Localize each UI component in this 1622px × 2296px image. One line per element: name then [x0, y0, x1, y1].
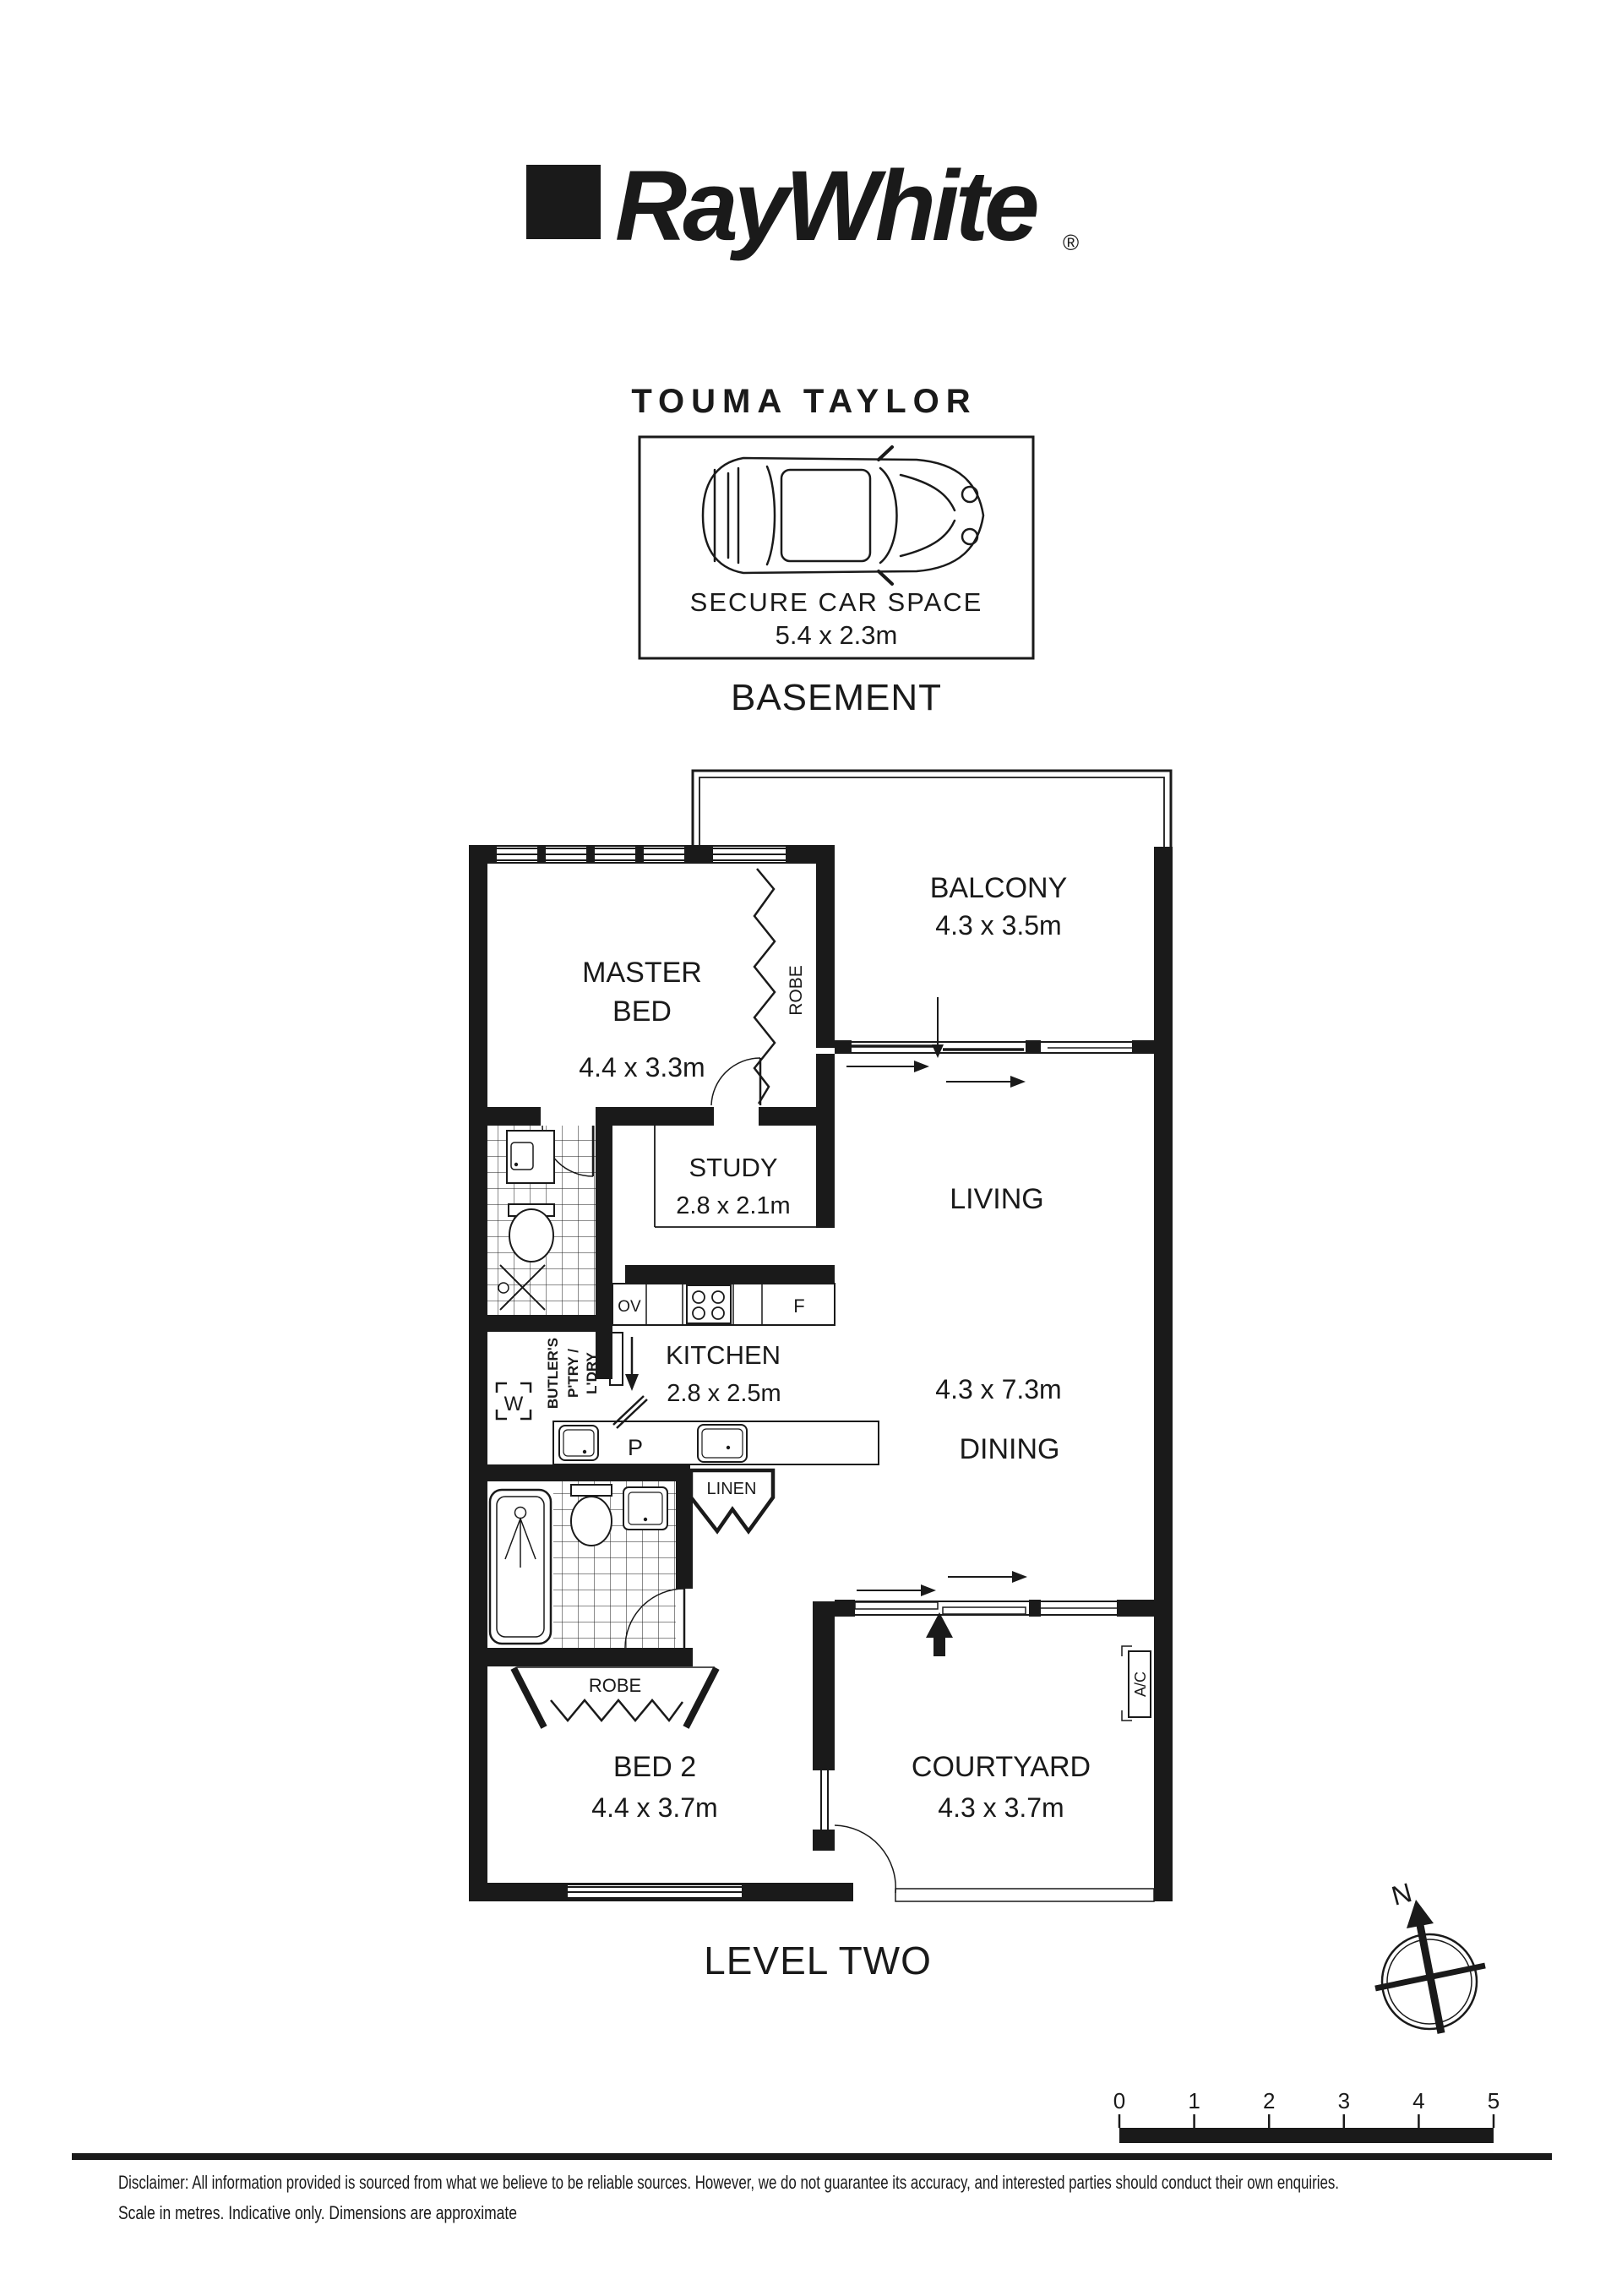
dining-label: DINING	[960, 1433, 1060, 1465]
master-robe	[754, 869, 775, 1104]
butlers-label-2: P'TRY /	[565, 1349, 581, 1398]
butlers-label-3: L'DRY	[584, 1352, 600, 1394]
master-bed-label-2: BED	[612, 995, 672, 1028]
scale-bar: 0 1 2 3 4 5	[1113, 2088, 1500, 2143]
fridge-label: F	[793, 1295, 804, 1317]
balcony-sliding-door	[835, 997, 1154, 1088]
kitchen-dims: 2.8 x 2.5m	[667, 1380, 781, 1407]
car-space-dims: 5.4 x 2.3m	[776, 620, 898, 650]
level-two-title: LEVEL TWO	[704, 1939, 932, 1982]
living-dims: 4.3 x 7.3m	[935, 1374, 1061, 1404]
scale-tick-0: 0	[1113, 2088, 1125, 2113]
north-label: N	[1388, 1877, 1415, 1912]
master-bed-dims: 4.4 x 3.3m	[579, 1052, 705, 1083]
linen-label: LINEN	[707, 1480, 757, 1498]
entry-arrow	[926, 1612, 953, 1656]
ensuite-vanity	[507, 1131, 554, 1183]
balcony-dims: 4.3 x 3.5m	[935, 910, 1061, 941]
courtyard-dims: 4.3 x 3.7m	[938, 1792, 1064, 1823]
footer-divider	[72, 2153, 1552, 2160]
courtyard-label: COURTYARD	[912, 1751, 1091, 1783]
bed2-label: BED 2	[613, 1751, 696, 1783]
washer-label: W	[504, 1393, 524, 1415]
kitchen-entry	[610, 1333, 639, 1391]
robe-master-label: ROBE	[787, 965, 806, 1016]
ac-unit: A/C	[1122, 1646, 1151, 1721]
robe-bed2-label: ROBE	[589, 1675, 641, 1696]
master-door	[711, 1058, 760, 1105]
disclaimer-line2: Scale in metres. Indicative only. Dimens…	[118, 2202, 517, 2223]
study-label: STUDY	[689, 1153, 777, 1182]
pantry-label: P	[628, 1435, 643, 1460]
study-dims: 2.8 x 2.1m	[676, 1192, 790, 1219]
butlers-pantry: W BUTLER'S P'TRY / L'DRY	[497, 1338, 600, 1419]
scale-tick-2: 2	[1263, 2088, 1275, 2113]
oven-label: OV	[618, 1298, 641, 1316]
scale-tick-5: 5	[1488, 2088, 1500, 2113]
ac-label: A/C	[1132, 1672, 1149, 1697]
compass: N	[1375, 1877, 1485, 2033]
ray-white-logo: RayWhite ®	[526, 150, 1079, 262]
car-space-label: SECURE CAR SPACE	[690, 587, 983, 617]
bed2-window	[568, 1885, 742, 1899]
car-space-box: SECURE CAR SPACE 5.4 x 2.3m	[640, 437, 1033, 658]
ensuite	[487, 1126, 596, 1315]
living-label: LIVING	[950, 1183, 1043, 1215]
balcony-balustrade	[693, 771, 1171, 847]
courtyard-screen	[895, 1889, 1154, 1901]
toilet2-icon	[571, 1485, 612, 1496]
balcony-label: BALCONY	[930, 872, 1068, 904]
butlers-label-1: BUTLER'S	[545, 1338, 561, 1409]
registered-mark: ®	[1063, 230, 1079, 255]
floorplan-page: RayWhite ® TOUMA TAYLOR SECURE CAR SPACE…	[0, 0, 1622, 2296]
logo-wordmark: RayWhite	[615, 150, 1037, 262]
office-name: TOUMA TAYLOR	[631, 383, 977, 420]
bathroom2	[490, 1481, 684, 1648]
kitchen-label: KITCHEN	[666, 1340, 781, 1370]
vanity2-icon	[623, 1487, 667, 1530]
disclaimer-line1: Disclaimer: All information provided is …	[118, 2172, 1339, 2193]
scale-tick-3: 3	[1338, 2088, 1350, 2113]
logo-square-icon	[526, 165, 601, 239]
master-bed-label-1: MASTER	[582, 957, 702, 989]
linen-closet: LINEN	[691, 1470, 773, 1531]
bed2-dims: 4.4 x 3.7m	[591, 1792, 717, 1823]
dining-sliding-door	[853, 1571, 1154, 1615]
basement-title: BASEMENT	[731, 677, 942, 718]
scale-tick-1: 1	[1188, 2088, 1200, 2113]
scale-tick-4: 4	[1412, 2088, 1424, 2113]
car-icon	[703, 447, 983, 584]
